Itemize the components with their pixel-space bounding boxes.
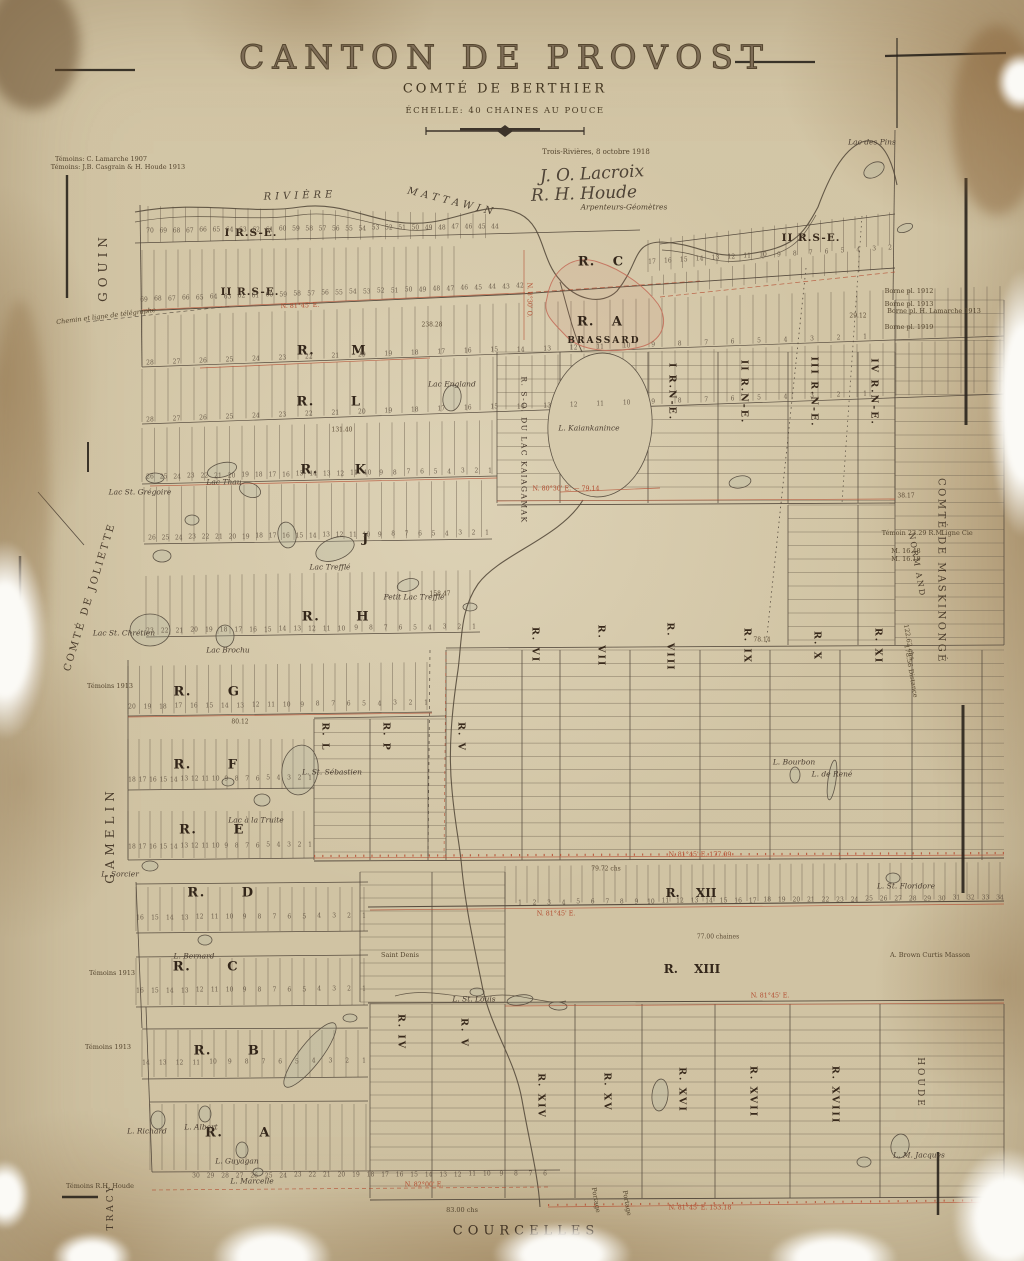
lot-number: 2 <box>474 468 478 475</box>
lot-number: 2 <box>345 1058 349 1065</box>
bearing-2: N. 80°30' E. — 79.14 <box>533 486 600 493</box>
lot-number: 32 <box>967 895 975 902</box>
lot-number: 13 <box>181 987 189 994</box>
lot-number: 8 <box>514 1171 518 1178</box>
lot-number: 1 <box>362 986 366 993</box>
lot-number: 23 <box>146 628 154 635</box>
range-l: R. L <box>297 395 362 410</box>
lot-number: 15 <box>264 626 272 633</box>
lot-number: 7 <box>272 986 276 993</box>
range-ix: R. IX <box>742 628 753 664</box>
range-xvii: R. XVII <box>748 1066 759 1118</box>
lot-number: 6 <box>398 624 402 631</box>
lot-number: 23 <box>836 896 844 903</box>
lot-number: 14 <box>170 843 178 850</box>
lot-number: 56 <box>321 290 329 297</box>
bearing-8: N. 8°30' O. <box>526 283 533 318</box>
township-houde: HOUDE <box>915 1057 925 1109</box>
meas-13140: 131.40 <box>332 427 353 434</box>
lot-number: 6 <box>256 775 260 782</box>
lot-number: 11 <box>743 253 751 260</box>
lot-number: 9 <box>651 398 655 405</box>
range-vi: R. VI <box>530 627 541 663</box>
lot-number: 17 <box>437 406 445 413</box>
bearing-3: N. 81°45' E. 177.09 <box>669 852 732 859</box>
lot-number: 20 <box>229 533 237 540</box>
lot-number: 3 <box>332 986 336 993</box>
lot-number: 14 <box>221 702 229 709</box>
lot-number: 9 <box>651 341 655 348</box>
note-ligne-cie: Ligne Cie <box>941 529 973 537</box>
lot-number: 7 <box>405 531 409 538</box>
map-label-layer: GOUINCOMTÉ DE JOLIETTEGAMELINTRACYCOURCE… <box>0 0 1024 1261</box>
lot-number: 14 <box>309 532 317 539</box>
lake-de-rene: L. de René <box>812 770 853 779</box>
lot-number: 12 <box>196 914 204 921</box>
lot-number: 8 <box>258 986 262 993</box>
lot-number: 21 <box>332 353 340 360</box>
lot-number: 12 <box>308 626 316 633</box>
map-subtitle: COMTÉ DE BERTHIER <box>403 82 607 97</box>
lot-number: 20 <box>338 1172 346 1179</box>
lot-number: 4 <box>317 986 321 993</box>
lot-number: 4 <box>277 842 281 849</box>
lot-number: 16 <box>136 988 144 995</box>
lot-number: 7 <box>245 775 249 782</box>
lot-number: 1 <box>362 1058 366 1065</box>
lot-number: 70 <box>146 228 154 235</box>
lot-number: 5 <box>302 913 306 920</box>
lot-number: 1 <box>424 700 428 707</box>
lot-number: 1 <box>308 842 312 849</box>
lot-number: 68 <box>154 296 162 303</box>
lot-number: 68 <box>173 227 181 234</box>
meas-23828: 238.28 <box>422 322 443 329</box>
note-m1619: M. 16.19 <box>891 555 920 563</box>
lot-number: 26 <box>880 896 888 903</box>
lot-number: 51 <box>391 287 399 294</box>
lot-number: 62 <box>238 293 246 300</box>
lake-brochu: Lac Brochu <box>206 646 250 655</box>
lot-number: 50 <box>405 287 413 294</box>
lot-number: 23 <box>279 355 287 362</box>
lot-number: 10 <box>226 987 234 994</box>
lot-number: 11 <box>201 843 209 850</box>
lot-number: 1 <box>485 530 489 537</box>
lot-number: 28 <box>909 895 917 902</box>
lot-number: 18 <box>367 1172 375 1179</box>
lot-number: 7 <box>245 842 249 849</box>
lot-number: 21 <box>214 472 222 479</box>
lot-number: 44 <box>488 284 496 291</box>
lake-bourbon: L. Bourbon <box>773 758 815 767</box>
lot-number: 4 <box>428 624 432 631</box>
lot-number: 7 <box>261 1058 265 1065</box>
lot-number: 14 <box>705 898 713 905</box>
lot-number: 20 <box>190 627 198 634</box>
lot-number: 3 <box>393 700 397 707</box>
range-4-rne: IV R.N-E. <box>869 358 880 426</box>
lot-number: 2 <box>472 530 476 537</box>
lot-number: 11 <box>211 914 219 921</box>
lot-number: 52 <box>385 225 393 232</box>
lot-number: 59 <box>279 291 287 298</box>
lot-number: 66 <box>199 227 207 234</box>
lot-number: 1 <box>488 468 492 475</box>
lot-number: 9 <box>634 898 638 905</box>
lot-number: 20 <box>128 704 136 711</box>
range-2-rne: II R.N-E. <box>739 360 750 425</box>
lot-number: 12 <box>176 1059 184 1066</box>
lot-number: 4 <box>856 246 860 253</box>
lot-number: 1 <box>518 900 522 907</box>
lot-number: 17 <box>269 533 277 540</box>
meas-2912: 29.12 <box>849 313 866 320</box>
map-place-date: Trois-Rivières, 8 octobre 1918 <box>542 148 650 156</box>
lot-number: 5 <box>431 530 435 537</box>
lot-number: 53 <box>372 225 380 232</box>
lot-number: 25 <box>160 473 168 480</box>
lot-number: 28 <box>146 360 154 367</box>
lot-number: 14 <box>517 403 525 410</box>
lot-number: 13 <box>691 898 699 905</box>
lot-number: 11 <box>192 1059 200 1066</box>
lot-number: 15 <box>296 532 304 539</box>
lot-number: 8 <box>620 898 624 905</box>
lot-number: 4 <box>784 393 788 400</box>
lot-number: 4 <box>562 899 566 906</box>
lot-number: 8 <box>235 842 239 849</box>
lot-number: 22 <box>305 411 313 418</box>
lot-number: 12 <box>570 401 578 408</box>
lot-number: 28 <box>146 417 154 424</box>
lot-number: 13 <box>543 402 551 409</box>
lot-number: 13 <box>439 1171 447 1178</box>
lot-number: 3 <box>461 468 465 475</box>
lot-number: 12 <box>728 254 736 261</box>
note-borne-1919: Borne pl. 1919 <box>885 323 934 331</box>
map-title: CANTON DE PROVOST <box>239 38 771 77</box>
meas-8012: 80.12 <box>231 719 248 726</box>
lot-number: 18 <box>128 844 136 851</box>
lot-number: 13 <box>543 345 551 352</box>
lot-number: 6 <box>591 899 595 906</box>
lot-number: 24 <box>279 1172 287 1179</box>
lot-number: 29 <box>923 895 931 902</box>
paper-tear <box>0 540 48 740</box>
lot-number: 10 <box>212 776 220 783</box>
lot-number: 20 <box>358 409 366 416</box>
note-temoins-1907: Témoins: C. Lamarche 1907 <box>55 155 147 163</box>
lot-number: 10 <box>647 898 655 905</box>
lot-number: 13 <box>322 532 330 539</box>
lot-number: 7 <box>809 249 813 256</box>
lot-number: 27 <box>173 359 181 366</box>
lot-number: 7 <box>529 1171 533 1178</box>
lot-number: 48 <box>433 286 441 293</box>
lot-number: 5 <box>413 624 417 631</box>
lot-number: 7 <box>384 625 388 632</box>
lot-number: 27 <box>236 1172 244 1179</box>
lot-number: 18 <box>220 627 228 634</box>
lake-albert: L. Albert <box>184 1123 217 1132</box>
note-temoins-b: Témoins 1913 <box>89 969 135 977</box>
lot-number: 12 <box>196 987 204 994</box>
paper-tear <box>952 1148 1024 1261</box>
lot-number: 11 <box>662 898 670 905</box>
lot-number: 1 <box>863 391 867 398</box>
lot-number: 7 <box>272 913 276 920</box>
lot-number: 29 <box>207 1172 215 1179</box>
lot-number: 2 <box>298 842 302 849</box>
lot-number: 7 <box>406 469 410 476</box>
lot-number: 22 <box>822 896 830 903</box>
lot-number: 13 <box>293 626 301 633</box>
lot-number: 10 <box>623 342 631 349</box>
lot-number: 6 <box>256 842 260 849</box>
lot-number: 48 <box>438 224 446 231</box>
lot-number: 16 <box>249 626 257 633</box>
range-c2: R. C <box>173 960 239 975</box>
lot-number: 15 <box>490 347 498 354</box>
lot-number: 15 <box>151 914 159 921</box>
lot-number: 4 <box>445 530 449 537</box>
lot-number: 6 <box>825 248 829 255</box>
lot-number: 18 <box>255 533 263 540</box>
lot-number: 13 <box>712 255 720 262</box>
paper-tear <box>996 52 1024 112</box>
lot-number: 26 <box>146 474 154 481</box>
lot-number: 17 <box>381 1171 389 1178</box>
township-gouin: GOUIN <box>96 232 110 302</box>
lot-number: 31 <box>953 895 961 902</box>
lot-number: 22 <box>309 1172 317 1179</box>
lot-number: 14 <box>279 626 287 633</box>
lot-number: 20 <box>228 472 236 479</box>
lot-number: 15 <box>490 404 498 411</box>
lot-number: 57 <box>307 290 315 297</box>
lot-number: 18 <box>128 777 136 784</box>
lot-number: 64 <box>210 294 218 301</box>
township-tracy: TRACY <box>106 1183 116 1230</box>
range-x: R. X <box>812 631 823 661</box>
range-xv: R. XV <box>602 1072 613 1111</box>
lot-number: 7 <box>704 339 708 346</box>
lake-bernard: L. Bernard <box>174 952 215 961</box>
lot-number: 9 <box>224 775 228 782</box>
lot-number: 11 <box>323 625 331 632</box>
lot-number: 44 <box>491 224 499 231</box>
map-sheet: GOUINCOMTÉ DE JOLIETTEGAMELINTRACYCOURCE… <box>0 0 1024 1261</box>
lot-number: 7 <box>331 701 335 708</box>
range-a-top: R. A <box>577 315 623 330</box>
lot-number: 22 <box>161 627 169 634</box>
lot-number: 64 <box>226 227 234 234</box>
lot-number: 52 <box>377 288 385 295</box>
lot-number: 67 <box>186 227 194 234</box>
lot-number: 12 <box>454 1171 462 1178</box>
lot-number: 4 <box>317 913 321 920</box>
lot-number: 3 <box>443 624 447 631</box>
lot-number: 54 <box>349 289 357 296</box>
lot-number: 17 <box>437 349 445 356</box>
lot-number: 12 <box>337 470 345 477</box>
note-brown: A. Brown Curtis Masson <box>890 951 970 959</box>
lot-number: 10 <box>623 399 631 406</box>
lake-thau: Lac Thau <box>206 478 241 487</box>
lot-number: 2 <box>888 245 892 252</box>
mattawin-label: MATTAWIN <box>406 186 498 219</box>
note-portage-b: Portage <box>621 1190 633 1217</box>
lot-number: 1 <box>362 913 366 920</box>
lot-number: 22 <box>305 354 313 361</box>
lot-number: 8 <box>245 1059 249 1066</box>
note-portage-a: Portage <box>590 1187 602 1214</box>
lot-number: 24 <box>175 534 183 541</box>
lot-number: 4 <box>378 700 382 707</box>
lake-sorcier: L. Sorcier <box>101 870 139 879</box>
lot-number: 15 <box>160 843 168 850</box>
range-b: R. B <box>194 1044 261 1059</box>
lot-number: 27 <box>894 896 902 903</box>
lake-truite: Lac à la Truite <box>228 816 283 825</box>
lake-st-floridore: L. St. Floridore <box>877 882 935 891</box>
lot-number: 17 <box>139 776 147 783</box>
lot-number: 49 <box>425 224 433 231</box>
lot-number: 54 <box>358 225 366 232</box>
lot-number: 26 <box>199 415 207 422</box>
lot-number: 45 <box>474 284 482 291</box>
paper-tear <box>768 1228 898 1261</box>
lot-number: 17 <box>648 259 656 266</box>
lot-number: 13 <box>159 1059 167 1066</box>
lot-number: 21 <box>323 1172 331 1179</box>
lot-number: 17 <box>269 471 277 478</box>
bearing-7: N. 81°45' E. 153.18 <box>669 1205 732 1212</box>
range-xvi: R. XVI <box>677 1067 688 1113</box>
lot-number: 6 <box>287 913 291 920</box>
lot-number: 1 <box>308 775 312 782</box>
lot-number: 16 <box>190 703 198 710</box>
range-iv-south: R. IV <box>396 1014 407 1050</box>
lot-number: 33 <box>982 895 990 902</box>
lot-number: 10 <box>364 470 372 477</box>
lot-number: 19 <box>385 408 393 415</box>
lot-number: 58 <box>305 226 313 233</box>
lot-number: 16 <box>136 915 144 922</box>
note-17856: 178.56 Distance <box>902 644 919 698</box>
lot-number: 4 <box>277 775 281 782</box>
lot-number: 27 <box>173 416 181 423</box>
range-c-top: R. C <box>578 255 624 270</box>
range-xiv: R. XIV <box>536 1073 547 1119</box>
lot-number: 13 <box>323 470 331 477</box>
lot-number: 51 <box>398 225 406 232</box>
riviere-label: RIVIÈRE <box>263 189 336 203</box>
lot-number: 2 <box>347 986 351 993</box>
lot-number: 5 <box>840 247 844 254</box>
note-saint-denis: Saint Denis <box>381 951 419 959</box>
lot-number: 16 <box>396 1171 404 1178</box>
range-g: R. G <box>174 685 241 700</box>
lot-number: 11 <box>267 702 275 709</box>
bearing-4: N. 81°45' E. <box>537 911 576 918</box>
lot-number: 12 <box>570 344 578 351</box>
lot-number: 19 <box>385 351 393 358</box>
lot-number: 30 <box>192 1173 200 1180</box>
lot-number: 16 <box>149 843 157 850</box>
lot-number: 3 <box>287 842 291 849</box>
meas-15847: 158.47 <box>430 591 451 598</box>
lot-number: 3 <box>872 245 876 252</box>
lot-number: 2 <box>837 391 841 398</box>
note-borne-1912: Borne pl. 1912 <box>885 287 934 295</box>
lot-number: 69 <box>140 297 148 304</box>
note-temoins-c: Témoins 1913 <box>85 1043 131 1051</box>
range-v-south: R. V <box>459 1018 470 1048</box>
lot-number: 3 <box>329 1058 333 1065</box>
lot-number: 14 <box>309 471 317 478</box>
lot-number: 45 <box>478 224 486 231</box>
lot-number: 26 <box>148 535 156 542</box>
lot-number: 6 <box>543 1171 547 1178</box>
lot-number: 13 <box>181 843 189 850</box>
lot-number: 69 <box>159 227 167 234</box>
lot-number: 50 <box>412 224 420 231</box>
lot-number: 14 <box>425 1171 433 1178</box>
lot-number: 6 <box>731 338 735 345</box>
lot-number: 46 <box>460 285 468 292</box>
scale-bar-ornament <box>420 125 590 137</box>
lot-number: 46 <box>465 224 473 231</box>
range-xi: R. XI <box>873 628 884 664</box>
lot-number: 67 <box>168 295 176 302</box>
lot-number: 5 <box>266 842 270 849</box>
lot-number: 18 <box>411 350 419 357</box>
note-temoins-1913: Témoins: J.B. Casgrain & H. Houde 1913 <box>51 163 185 171</box>
lot-number: 10 <box>283 701 291 708</box>
lot-number: 23 <box>188 534 196 541</box>
lake-kaiankanince: L. Kaiankanince <box>558 424 619 433</box>
lot-number: 8 <box>369 625 373 632</box>
lot-number: 53 <box>363 288 371 295</box>
lot-number: 12 <box>336 532 344 539</box>
meas-7814: 78.14 <box>753 637 770 644</box>
lot-number: 4 <box>447 468 451 475</box>
lot-number: 59 <box>292 226 300 233</box>
map-scale-label: ÉCHELLE: 40 CHAINES AU POUCE <box>405 106 604 116</box>
lot-number: 4 <box>784 336 788 343</box>
lot-number: 7 <box>704 396 708 403</box>
lot-number: 23 <box>294 1172 302 1179</box>
lot-number: 19 <box>205 627 213 634</box>
lot-number: 8 <box>258 913 262 920</box>
lot-number: 65 <box>213 227 221 234</box>
lot-number: 15 <box>410 1171 418 1178</box>
lot-number: 28 <box>221 1172 229 1179</box>
lot-number: 20 <box>358 352 366 359</box>
lot-number: 63 <box>224 293 232 300</box>
paper-tear <box>52 1232 132 1261</box>
lot-number: 15 <box>720 897 728 904</box>
lot-number: 10 <box>226 914 234 921</box>
note-3817: 38.17 <box>897 493 914 500</box>
lot-number: 15 <box>680 257 688 264</box>
lot-number: 6 <box>731 395 735 402</box>
lake-england: Lac England <box>428 380 476 389</box>
lot-number: 21 <box>215 534 223 541</box>
lot-number: 25 <box>162 534 170 541</box>
